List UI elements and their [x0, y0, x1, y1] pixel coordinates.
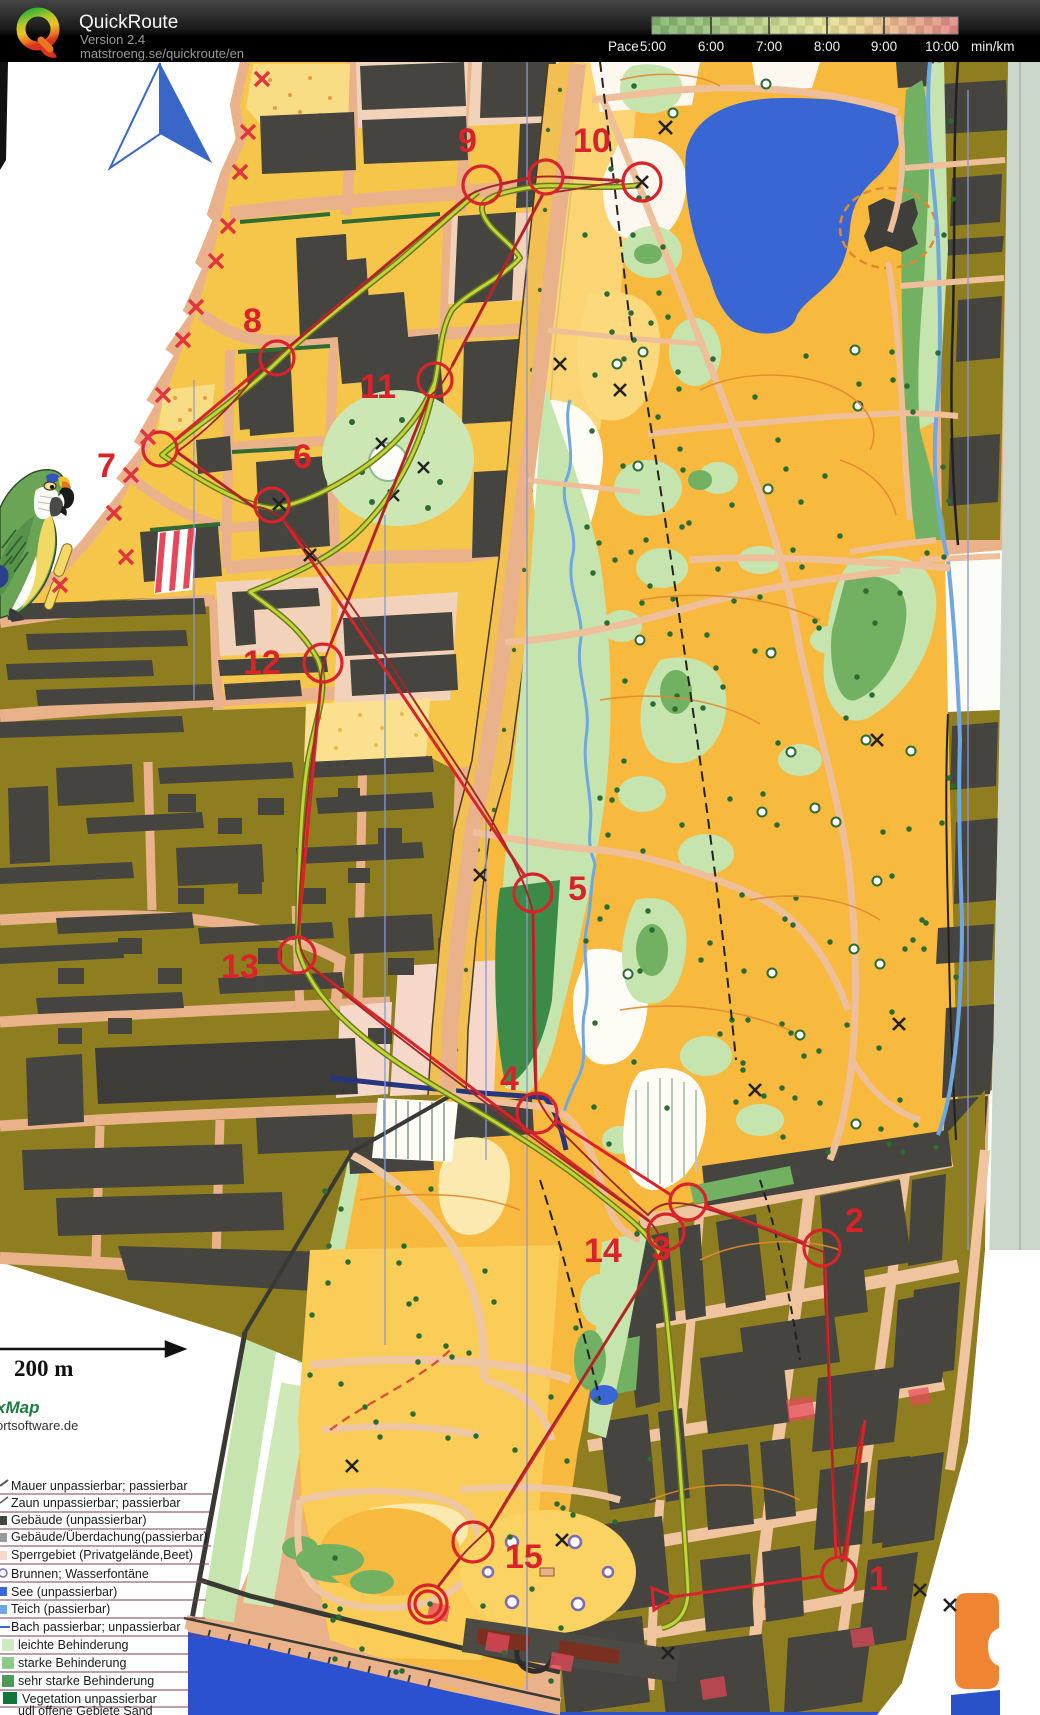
- svg-text:Version 2.4: Version 2.4: [80, 32, 145, 47]
- svg-text:xMap: xMap: [0, 1398, 39, 1417]
- svg-text:2: 2: [845, 1202, 864, 1240]
- svg-text:sehr starke Behinderung: sehr starke Behinderung: [18, 1674, 154, 1688]
- svg-text:9: 9: [458, 122, 477, 160]
- svg-text:4: 4: [500, 1060, 519, 1098]
- svg-text:Teich (passierbar): Teich (passierbar): [11, 1602, 110, 1616]
- svg-text:Mauer unpassierbar; passierbar: Mauer unpassierbar; passierbar: [11, 1479, 187, 1493]
- svg-text:udl offene Gebiete Sand: udl offene Gebiete Sand: [18, 1704, 153, 1715]
- svg-text:ortsoftware.de: ortsoftware.de: [0, 1418, 78, 1433]
- svg-text:Bach passierbar; unpassierbar: Bach passierbar; unpassierbar: [11, 1620, 181, 1634]
- svg-text:Brunnen; Wasserfontäne: Brunnen; Wasserfontäne: [11, 1567, 149, 1581]
- svg-text:leichte Behinderung: leichte Behinderung: [18, 1638, 129, 1652]
- svg-text:1: 1: [869, 1560, 888, 1598]
- svg-text:QuickRoute: QuickRoute: [79, 12, 178, 33]
- svg-text:9:00: 9:00: [871, 39, 897, 54]
- svg-text:200 m: 200 m: [14, 1356, 73, 1381]
- svg-text:Zaun unpassierbar; passierbar: Zaun unpassierbar; passierbar: [11, 1496, 181, 1510]
- svg-text:See (unpassierbar): See (unpassierbar): [11, 1585, 117, 1599]
- svg-text:15: 15: [505, 1538, 543, 1576]
- svg-text:6: 6: [293, 438, 312, 476]
- svg-text:12: 12: [243, 644, 281, 682]
- svg-text:14: 14: [584, 1232, 622, 1270]
- svg-text:7: 7: [97, 447, 116, 485]
- svg-text:11: 11: [360, 368, 396, 406]
- svg-text:matstroeng.se/quickroute/en: matstroeng.se/quickroute/en: [80, 46, 244, 61]
- svg-text:6:00: 6:00: [698, 39, 724, 54]
- svg-text:5: 5: [568, 870, 587, 908]
- svg-text:3: 3: [652, 1230, 671, 1268]
- svg-text:10:00: 10:00: [925, 39, 959, 54]
- svg-text:7:00: 7:00: [756, 39, 782, 54]
- svg-text:Gebäude (unpassierbar): Gebäude (unpassierbar): [11, 1513, 147, 1527]
- svg-text:min/km: min/km: [971, 39, 1015, 54]
- svg-text:Gebäude/Überdachung(passierbar: Gebäude/Überdachung(passierbar): [11, 1530, 208, 1544]
- svg-text:8: 8: [243, 302, 262, 340]
- svg-text:5:00: 5:00: [640, 39, 666, 54]
- svg-text:8:00: 8:00: [814, 39, 840, 54]
- svg-text:starke Behinderung: starke Behinderung: [18, 1656, 126, 1670]
- svg-text:13: 13: [221, 948, 259, 986]
- svg-text:Sperrgebiet (Privatgelände,Bee: Sperrgebiet (Privatgelände,Beet): [11, 1548, 193, 1562]
- svg-text:10: 10: [573, 122, 611, 160]
- svg-text:Pace: Pace: [608, 39, 639, 54]
